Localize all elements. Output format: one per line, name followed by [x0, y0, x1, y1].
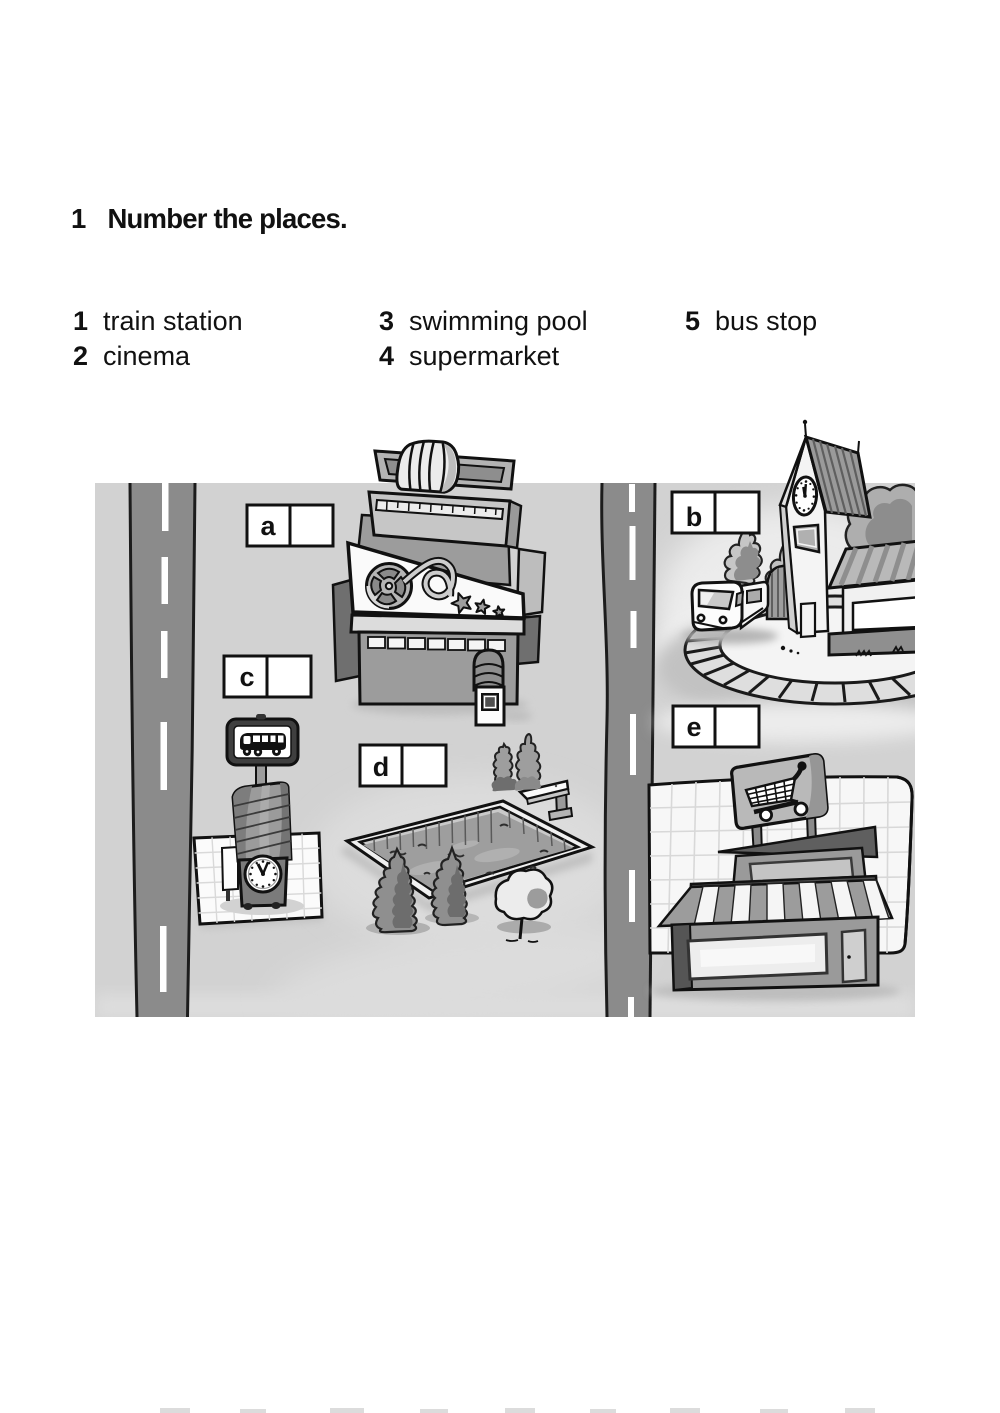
- svg-text:e: e: [686, 712, 701, 742]
- svg-text:d: d: [373, 752, 390, 782]
- svg-text:c: c: [239, 662, 254, 692]
- svg-text:b: b: [686, 502, 703, 532]
- svg-text:a: a: [260, 511, 276, 541]
